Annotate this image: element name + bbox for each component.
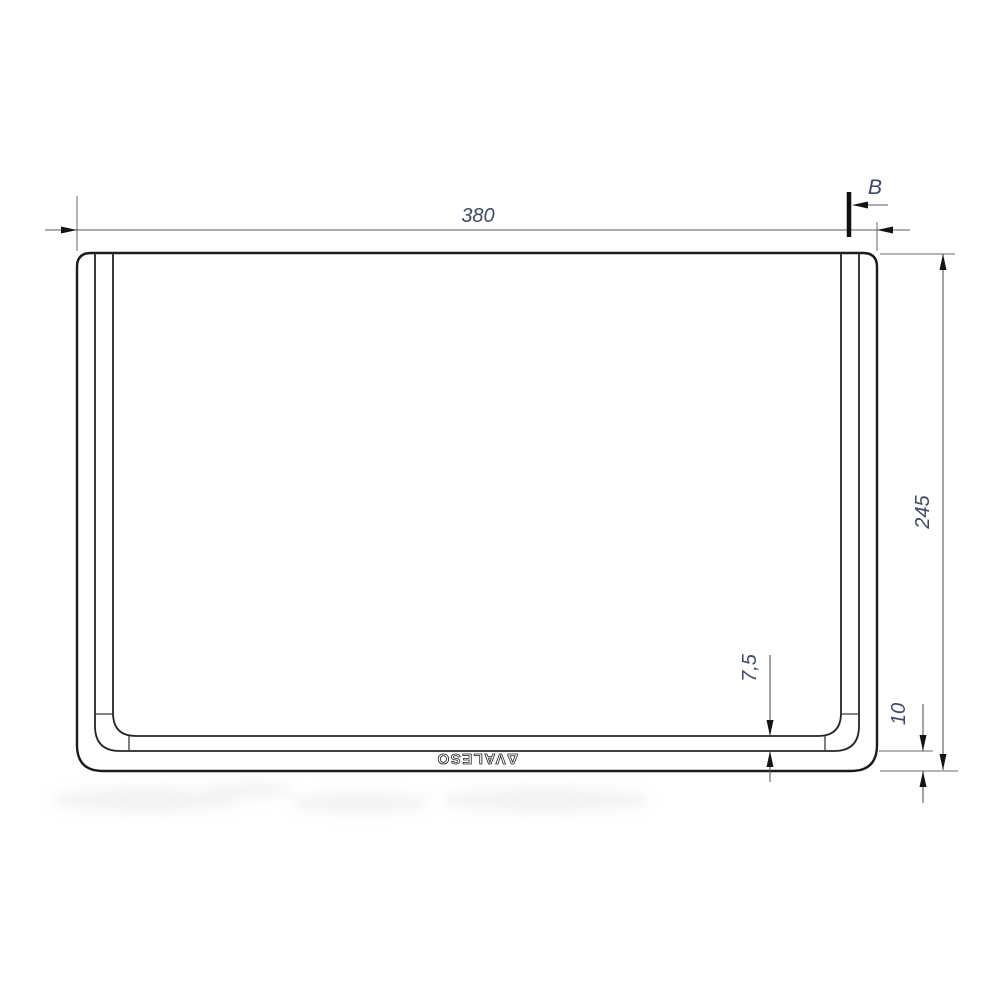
dimension-value-rim: 7,5 <box>739 653 761 682</box>
part-front-view: ΔVALESO <box>77 253 877 771</box>
arrowhead-left <box>61 227 77 234</box>
arrowhead-bottom <box>940 754 947 770</box>
dimension-height-245: 245 <box>880 254 958 771</box>
drawing-sheet: ΔVALESO 380 B 245 <box>0 0 1000 1000</box>
arrowhead-down <box>767 720 774 736</box>
dimension-value-base: 10 <box>888 703 910 725</box>
part-basin-inner-edge <box>113 253 841 736</box>
arrowhead-right <box>877 227 893 234</box>
dimension-value-width: 380 <box>461 205 494 227</box>
section-label: B <box>868 176 882 199</box>
arrowhead-down <box>920 735 927 751</box>
section-mark-b: B <box>849 176 888 237</box>
brand-logo-text: ΔVALESO <box>436 750 518 767</box>
arrowhead-top <box>940 254 947 270</box>
fillet-tangent-edges <box>95 714 859 751</box>
scan-shadow-artifacts <box>50 782 650 814</box>
part-outer-outline <box>77 253 877 771</box>
technical-drawing-canvas: ΔVALESO 380 B 245 <box>0 0 1000 1000</box>
dimension-value-height: 245 <box>912 494 934 529</box>
dimension-base-10: 10 <box>879 703 933 803</box>
arrowhead-up <box>920 771 927 787</box>
arrowhead-up <box>767 751 774 767</box>
dimension-width-380: 380 <box>45 196 910 251</box>
dimension-rim-7-5: 7,5 <box>739 653 774 782</box>
section-arrowhead <box>852 202 868 209</box>
